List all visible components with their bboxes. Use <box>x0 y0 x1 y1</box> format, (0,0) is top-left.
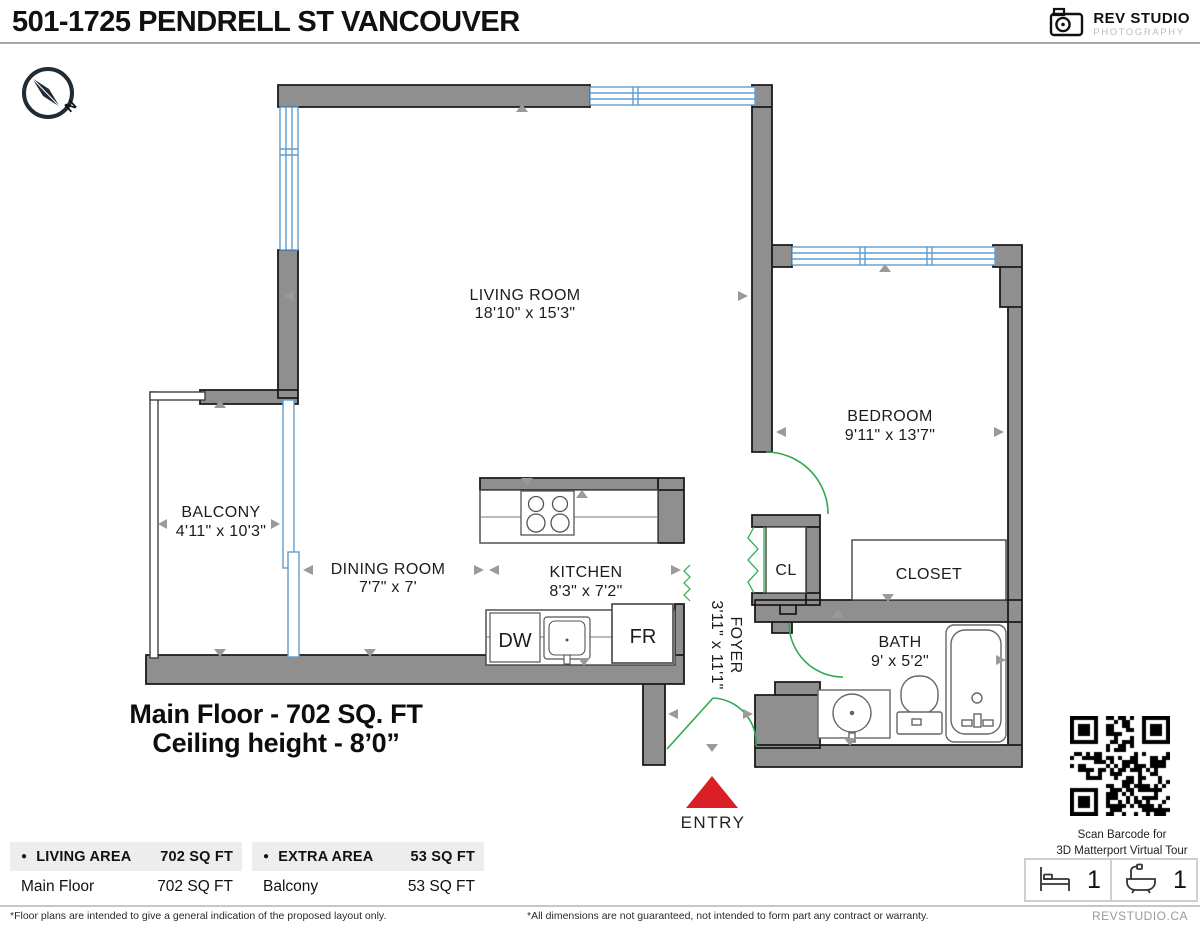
room-label-balcony: BALCONY <box>181 504 260 521</box>
room-dims-dining: 7'7" x 7' <box>359 579 417 596</box>
disclaimer-left: *Floor plans are intended to give a gene… <box>10 910 386 922</box>
extra-area-label: EXTRA AREA <box>278 849 373 865</box>
window-living-left <box>280 107 298 250</box>
bed-bath-counts: 1 1 <box>1024 858 1198 902</box>
floor-plan: N <box>0 0 1200 929</box>
living-area-total: 702 SQ FT <box>160 849 233 865</box>
qr-caption-line2: 3D Matterport Virtual Tour <box>1038 844 1200 860</box>
floor-summary-line1: Main Floor - 702 SQ. FT <box>129 699 423 729</box>
bath-count-cell: 1 <box>1110 860 1196 900</box>
entry-door <box>667 698 756 749</box>
bath-count: 1 <box>1173 866 1187 895</box>
row-value: 702 SQ FT <box>157 878 233 896</box>
room-dims-bedroom: 9'11" x 13'7" <box>845 427 935 444</box>
extra-area-table: ● EXTRA AREA 53 SQ FT Balcony 53 SQ FT <box>252 842 484 902</box>
room-dims-balcony: 4'11" x 10'3" <box>176 523 266 540</box>
room-dims-foyer: 3'11" x 11'1" <box>708 600 725 689</box>
sink <box>544 617 590 664</box>
row-label: Main Floor <box>21 878 94 896</box>
table-row: Balcony 53 SQ FT <box>252 871 484 902</box>
row-value: 53 SQ FT <box>408 878 475 896</box>
entry-label: ENTRY <box>681 813 746 832</box>
foyer-accordion-marks <box>684 565 690 601</box>
toilet <box>901 676 938 714</box>
room-label-cl: CL <box>775 562 796 579</box>
bedroom-door <box>766 452 828 514</box>
extra-area-header: ● EXTRA AREA 53 SQ FT <box>252 842 484 871</box>
cl-accordion-door <box>748 527 764 593</box>
cl-closet-box <box>766 527 806 593</box>
room-dims-kitchen: 8'3" x 7'2" <box>549 583 622 600</box>
compass-icon: N <box>24 69 80 117</box>
room-label-kitchen: KITCHEN <box>549 564 622 581</box>
bullet-icon: ● <box>263 851 269 862</box>
table-row: Main Floor 702 SQ FT <box>10 871 242 902</box>
room-dims-bath: 9' x 5'2" <box>871 653 929 670</box>
living-area-table: ● LIVING AREA 702 SQ FT Main Floor 702 S… <box>10 842 242 902</box>
room-dims-living: 18'10" x 15'3" <box>475 305 576 322</box>
row-label: Balcony <box>263 878 318 896</box>
living-area-header: ● LIVING AREA 702 SQ FT <box>10 842 242 871</box>
room-label-dining: DINING ROOM <box>331 561 446 578</box>
living-area-label: LIVING AREA <box>36 849 131 865</box>
qr-code <box>1070 716 1170 816</box>
floor-summary-line2: Ceiling height - 8’0” <box>152 728 399 758</box>
dishwasher-label: DW <box>498 630 531 652</box>
bathtub-icon <box>1121 862 1161 899</box>
room-label-foyer: FOYER <box>727 616 744 673</box>
extra-area-total: 53 SQ FT <box>411 849 475 865</box>
fridge-label: FR <box>630 626 657 648</box>
entry-arrow <box>686 776 738 808</box>
bed-count: 1 <box>1087 866 1101 895</box>
window-living-top <box>590 87 755 105</box>
disclaimer-right: *All dimensions are not guaranteed, not … <box>527 910 928 922</box>
balcony-sliding-door <box>283 400 299 657</box>
bullet-icon: ● <box>21 851 27 862</box>
website-label: REVSTUDIO.CA <box>1092 909 1188 923</box>
bed-icon <box>1035 863 1075 898</box>
footer-divider <box>0 905 1200 907</box>
bed-count-cell: 1 <box>1026 860 1110 900</box>
room-label-living: LIVING ROOM <box>469 287 580 304</box>
room-label-closet: CLOSET <box>896 566 962 583</box>
room-label-bath: BATH <box>878 634 921 651</box>
floorplan-sheet: 501-1725 PENDRELL ST VANCOUVER REV STUDI… <box>0 0 1200 929</box>
qr-caption-line1: Scan Barcode for <box>1038 828 1200 844</box>
room-label-bedroom: BEDROOM <box>847 408 932 425</box>
bath-door <box>789 623 843 677</box>
qr-caption: Scan Barcode for 3D Matterport Virtual T… <box>1038 828 1200 859</box>
window-bedroom-top <box>792 247 995 265</box>
